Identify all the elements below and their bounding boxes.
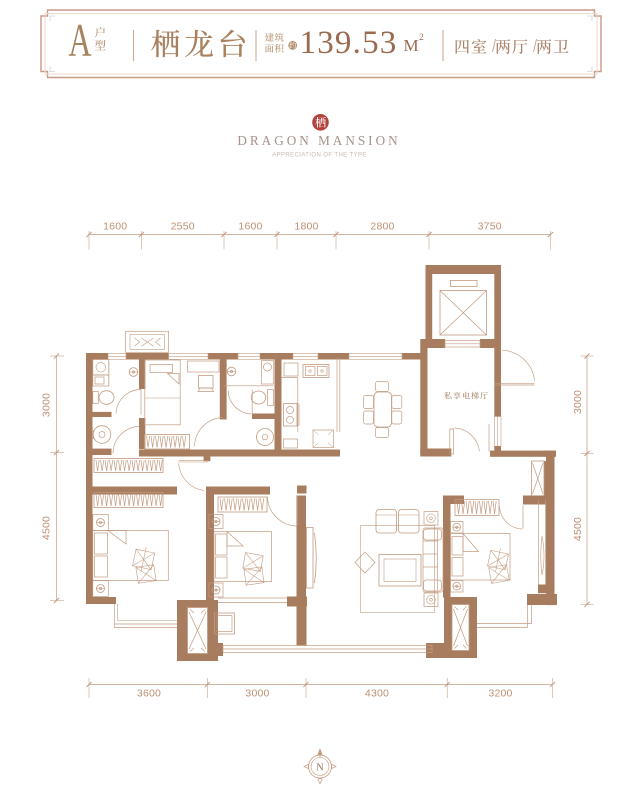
svg-text:3200: 3200	[488, 688, 512, 700]
svg-text:2: 2	[419, 32, 424, 42]
svg-text:2550: 2550	[171, 221, 195, 233]
svg-text:1600: 1600	[103, 221, 127, 233]
svg-text:139.53: 139.53	[300, 25, 398, 61]
svg-text:4300: 4300	[365, 688, 389, 700]
svg-text:3600: 3600	[137, 688, 161, 700]
svg-text:3000: 3000	[41, 393, 53, 417]
svg-text:4500: 4500	[572, 517, 584, 541]
svg-text:2800: 2800	[370, 221, 394, 233]
svg-text:DRAGON MANSION: DRAGON MANSION	[237, 133, 400, 148]
svg-text:N: N	[316, 763, 324, 774]
svg-text:3000: 3000	[572, 390, 584, 414]
svg-text:3750: 3750	[478, 221, 502, 233]
svg-text:3000: 3000	[245, 688, 269, 700]
svg-text:1600: 1600	[238, 221, 262, 233]
svg-text:M: M	[403, 36, 418, 55]
svg-text:A: A	[69, 15, 92, 67]
svg-text:4500: 4500	[41, 516, 53, 540]
svg-text:1800: 1800	[294, 221, 318, 233]
svg-text:APPRECIATION OF THE TYPE: APPRECIATION OF THE TYPE	[272, 153, 367, 159]
